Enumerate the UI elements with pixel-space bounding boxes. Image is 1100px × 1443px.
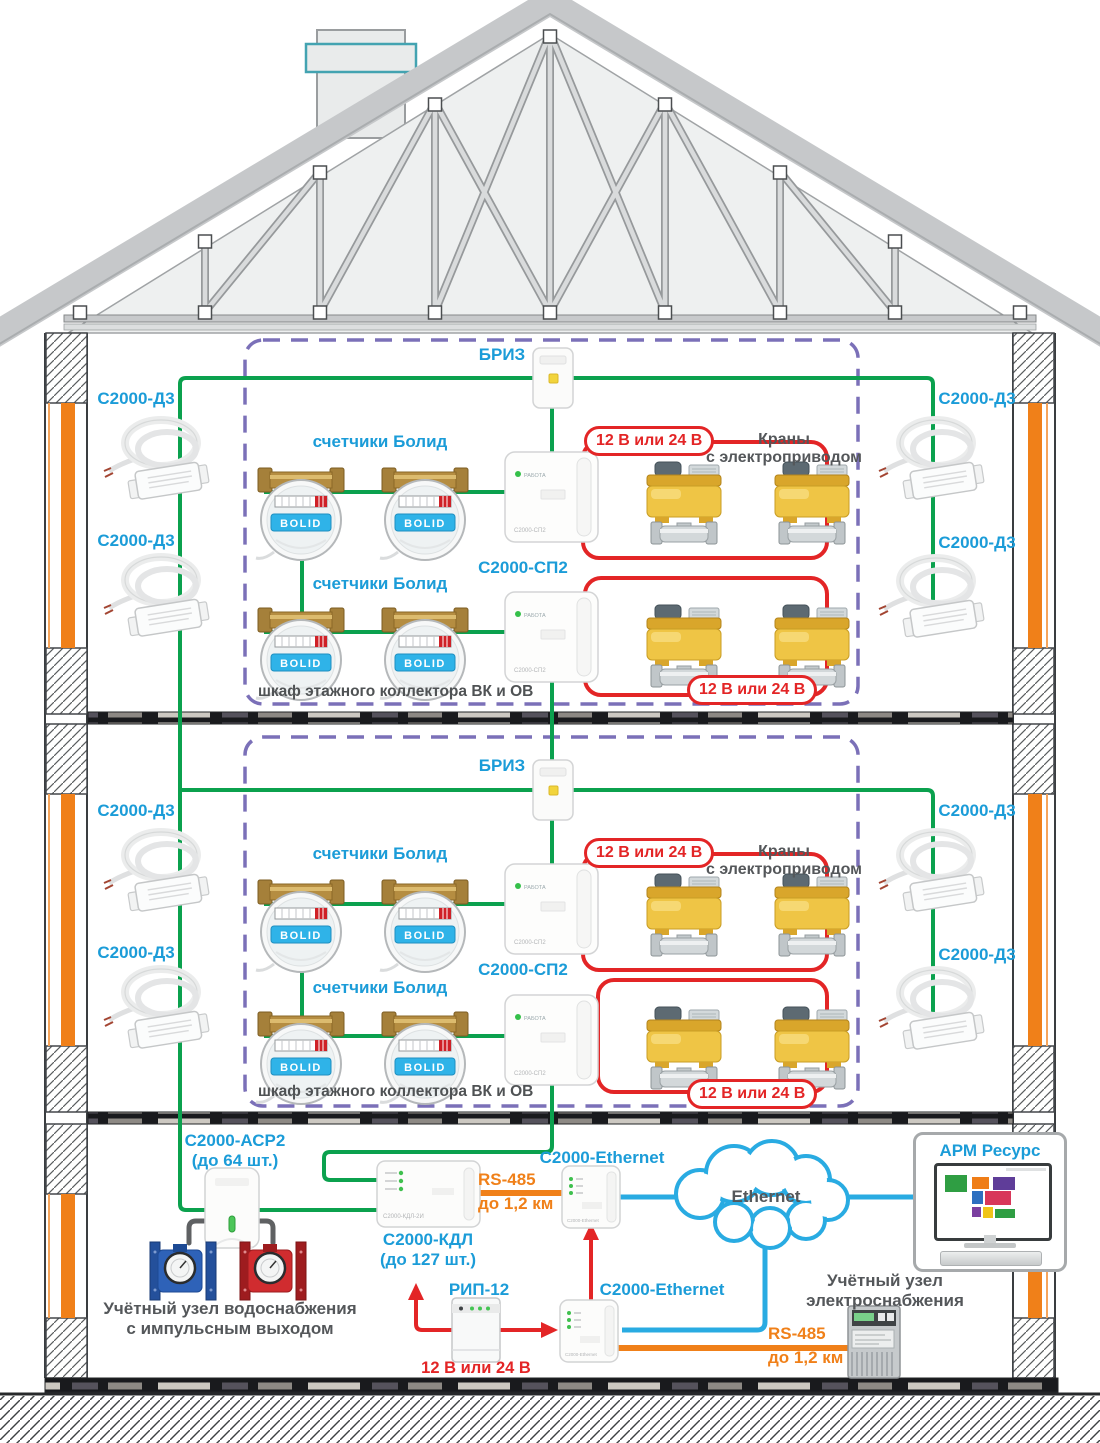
rip12-power-supply [452, 1298, 500, 1362]
sp2-module [505, 592, 598, 682]
power-12-24v-badge: 12 В или 24 В [584, 838, 714, 868]
arm-screen-tile [972, 1191, 983, 1204]
d3-sensor [104, 969, 210, 1050]
d3-label: С2000-Д3 [97, 944, 174, 963]
rs485-distance-label: до 1,2 км [768, 1349, 843, 1368]
arm-resource-label: АРМ Ресурс [940, 1141, 1041, 1161]
cabinet-label: шкаф этажного коллектора ВК и ОВ [258, 683, 533, 700]
water-unit-label-line1: Учётный узел водоснабжения [103, 1300, 356, 1319]
rs485-label: RS-485 [768, 1325, 826, 1344]
rip12-label: РИП-12 [449, 1281, 509, 1300]
power-unit-label-line1: Учётный узел [827, 1272, 943, 1291]
keyboard [940, 1251, 1042, 1266]
motorized-valve [647, 462, 721, 544]
electricity-meter [848, 1306, 900, 1378]
arm-screen-tile [995, 1209, 1015, 1218]
power-12-24v-badge: 12 В или 24 В [584, 426, 714, 456]
ethernet-converter [562, 1166, 620, 1228]
d3-label: С2000-Д3 [938, 534, 1015, 553]
d3-label: С2000-Д3 [938, 946, 1015, 965]
valves-label-line1: Краны [758, 431, 810, 449]
d3-label: С2000-Д3 [97, 390, 174, 409]
monitor [934, 1163, 1052, 1241]
arm-screen-tile [985, 1191, 1011, 1205]
motorized-valve [775, 462, 849, 544]
breeze-label-floor2: БРИЗ [479, 346, 525, 365]
kdl-label-line2: (до 127 шт.) [380, 1251, 476, 1270]
arm-screen-tile [993, 1177, 1015, 1190]
valves-label-line2: с электроприводом [706, 861, 862, 879]
ethernet-device-label: C2000-Ethernet [600, 1281, 725, 1300]
arm-screen-tile [972, 1207, 981, 1217]
industrial-water-meter-hot [240, 1242, 306, 1300]
water-meter [256, 880, 344, 972]
breeze-label-floor1: БРИЗ [479, 757, 525, 776]
monitor-base [964, 1243, 1016, 1248]
valves-label-line2: с электроприводом [706, 449, 862, 467]
rs485-label: RS-485 [478, 1171, 536, 1190]
sp2-module [505, 864, 598, 954]
d3-sensor [104, 420, 210, 501]
kdl-model-text: С2000-КДЛ-2И [383, 1214, 424, 1220]
kdl-label-line1: С2000-КДЛ [383, 1231, 473, 1250]
kdl-controller: С2000-КДЛ-2И [377, 1161, 480, 1227]
arm-screen-tiles [945, 1172, 1037, 1228]
motorized-valve [647, 874, 721, 956]
asr2-label-line1: С2000-АСР2 [185, 1132, 286, 1151]
arm-screen-tile [945, 1175, 967, 1192]
meters-label: счетчики Болид [313, 979, 448, 998]
valves-label-line1: Краны [758, 843, 810, 861]
asr2-label-line2: (до 64 шт.) [192, 1152, 279, 1171]
breeze-adapter [533, 760, 573, 820]
power-12-24v-badge: 12 В или 24 В [687, 1079, 817, 1109]
water-meter [380, 880, 468, 972]
power-unit-label-line2: электроснабжения [806, 1292, 964, 1311]
breeze-adapter [533, 348, 573, 408]
meters-label: счетчики Болид [313, 845, 448, 864]
sp2-module [505, 995, 598, 1085]
d3-label: С2000-Д3 [938, 802, 1015, 821]
arm-screen-tile [983, 1207, 993, 1218]
water-meter [380, 468, 468, 560]
meters-label: счетчики Болид [313, 433, 448, 452]
meters-label: счетчики Болид [313, 575, 448, 594]
arm-resource-workstation: АРМ Ресурс [913, 1132, 1067, 1272]
ethernet-converter [560, 1300, 618, 1362]
water-meter [256, 468, 344, 560]
motorized-valve [775, 874, 849, 956]
rs485-distance-label: до 1,2 км [478, 1195, 553, 1214]
sp2-label: С2000-СП2 [478, 559, 568, 578]
motorized-valve [647, 1007, 721, 1089]
d3-sensor [104, 832, 210, 913]
d3-label: С2000-Д3 [97, 532, 174, 551]
d3-sensor [104, 557, 210, 638]
motorized-valve [775, 1007, 849, 1089]
bolid-resource-metering-diagram: BOLID РАБОТА С2000-СП2 C2 [0, 0, 1100, 1443]
ethernet-device-label: C2000-Ethernet [540, 1149, 665, 1168]
sp2-label: С2000-СП2 [478, 961, 568, 980]
industrial-water-meter-cold [150, 1242, 216, 1300]
sp2-module [505, 452, 598, 542]
arm-screen-tile [972, 1177, 989, 1189]
screen-header-bar [1006, 1168, 1046, 1171]
water-unit-label-line2: с импульсным выходом [126, 1320, 333, 1339]
power-12-24v-text: 12 В или 24 В [421, 1359, 531, 1377]
power-12-24v-badge: 12 В или 24 В [687, 675, 817, 705]
cabinet-label: шкаф этажного коллектора ВК и ОВ [258, 1083, 533, 1100]
ethernet-cloud-label: Ethernet [732, 1188, 801, 1207]
asr2-counter-module [205, 1168, 259, 1248]
roof-truss [64, 30, 1036, 333]
d3-label: С2000-Д3 [938, 390, 1015, 409]
d3-label: С2000-Д3 [97, 802, 174, 821]
